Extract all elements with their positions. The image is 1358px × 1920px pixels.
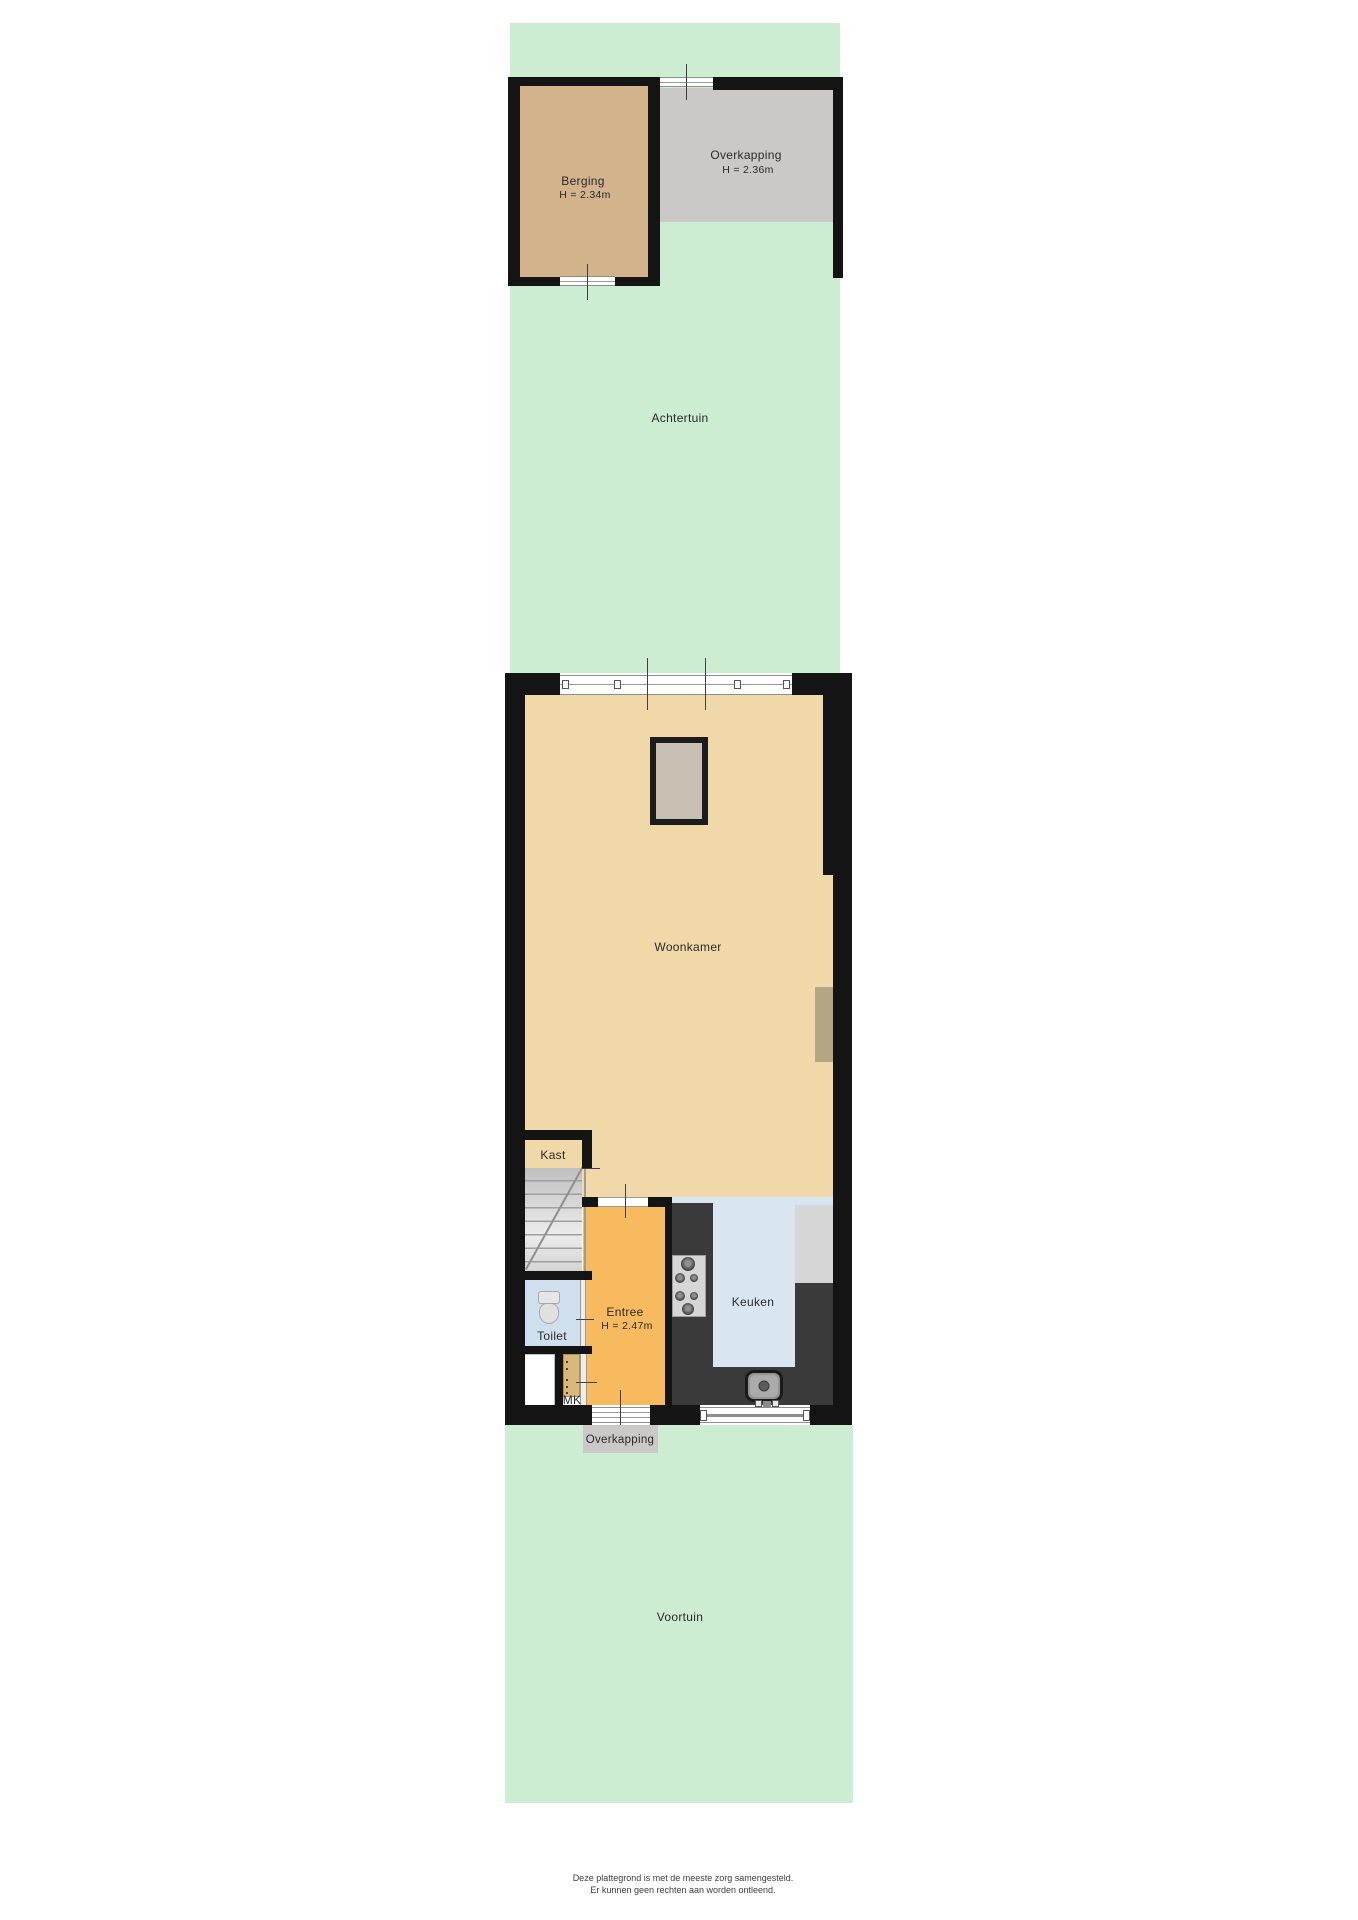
door-tick [582, 1168, 600, 1169]
achtertuin-label: Achtertuin [651, 411, 708, 425]
woonkamer-label: Woonkamer [654, 940, 721, 954]
floorplan-canvas: Achtertuin Berging H = 2.34m Overkapping… [0, 0, 1358, 1920]
overkapping-right-wall [833, 77, 843, 278]
sink [745, 1370, 783, 1402]
toilet-wall-bottom [505, 1346, 592, 1354]
disclaimer-line2: Er kunnen geen rechten aan worden ontlee… [383, 1884, 983, 1896]
kitchen-tall-cabinet [795, 1205, 833, 1283]
entree-kitchen-divider [665, 1197, 672, 1405]
overkapping-top-wall [713, 77, 843, 90]
door-tick [576, 1319, 594, 1320]
stove-burner [675, 1291, 685, 1301]
entree-label: Entree [606, 1305, 643, 1319]
stove-burner [690, 1292, 698, 1300]
window-tick [647, 658, 648, 710]
stove-burner [682, 1303, 694, 1315]
mk-label: MK [563, 1393, 582, 1407]
toilet-wall-top [505, 1271, 592, 1280]
stove-burner [675, 1273, 685, 1283]
mk-panel [563, 1354, 580, 1397]
front-sliding-door [592, 1407, 650, 1423]
overkapping-bottom-label: Overkapping [586, 1434, 655, 1446]
house-wall-bottom-right [810, 1405, 852, 1425]
window-tick [587, 264, 588, 300]
berging-wall-top [508, 77, 657, 86]
closet-white [523, 1354, 555, 1406]
woonkamer-rear-window [560, 675, 792, 695]
keuken-front-window [700, 1407, 810, 1423]
radiator [815, 987, 835, 1062]
window-tick [686, 64, 687, 100]
kast-label: Kast [540, 1148, 565, 1162]
kast-wall-right [582, 1130, 592, 1168]
door-tick [576, 1382, 597, 1383]
house-wall-right-lower [833, 875, 852, 1405]
toilet-door [580, 1280, 586, 1346]
disclaimer-line1: Deze plattegrond is met de meeste zorg s… [383, 1872, 983, 1884]
window-tick [705, 658, 706, 710]
entree-height-label: H = 2.47m [601, 1320, 652, 1332]
entree-wall-top-left [582, 1197, 598, 1207]
entree-door-opening [598, 1197, 648, 1207]
toilet-bowl [539, 1303, 559, 1324]
house-wall-top-right [792, 673, 852, 695]
house-wall-bottom-left [505, 1405, 592, 1425]
berging-wall-right [648, 77, 660, 286]
sink-faucet [755, 1400, 779, 1407]
stove-burner [681, 1257, 695, 1271]
overkapping-top-label: Overkapping [710, 148, 781, 162]
stove [672, 1255, 706, 1317]
woonkamer-object [650, 737, 708, 825]
keuken-label: Keuken [732, 1295, 775, 1309]
voortuin-label: Voortuin [657, 1610, 703, 1624]
house-wall-left [505, 673, 525, 1425]
toilet-label: Toilet [537, 1329, 567, 1343]
house-wall-right-upper [823, 695, 852, 875]
door-tick [625, 1184, 626, 1218]
berging-label: Berging [561, 174, 604, 188]
berging-wall-left [508, 77, 520, 286]
disclaimer-text: Deze plattegrond is met de meeste zorg s… [383, 1872, 983, 1896]
house-wall-bottom-mid [650, 1405, 700, 1425]
berging-height-label: H = 2.34m [559, 189, 610, 201]
staircase-edge [584, 1168, 586, 1271]
stove-burner [690, 1274, 698, 1282]
kitchen-counter-right [795, 1283, 833, 1367]
overkapping-top-height-label: H = 2.36m [722, 164, 773, 176]
